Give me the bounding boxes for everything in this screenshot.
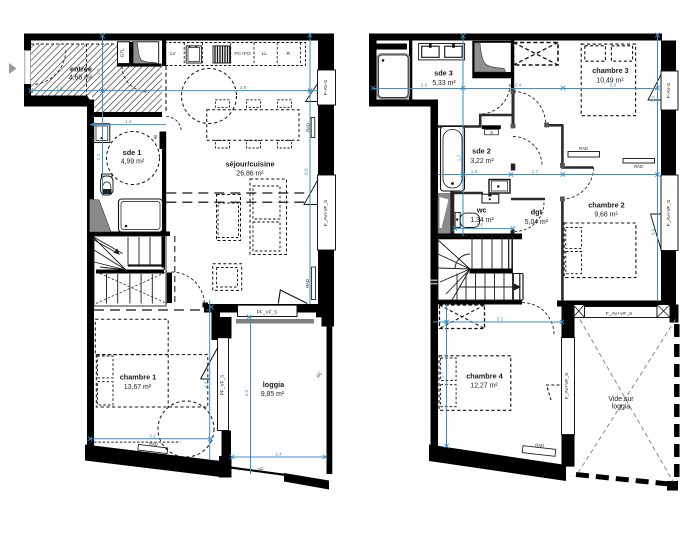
svg-text:RAD: RAD [535, 442, 544, 448]
svg-text:4.0: 4.0 [204, 381, 209, 388]
svg-text:3.0: 3.0 [651, 228, 656, 235]
svg-text:5,04 m²: 5,04 m² [525, 219, 549, 226]
svg-text:1.6: 1.6 [56, 85, 63, 90]
svg-text:1.5: 1.5 [477, 222, 484, 227]
svg-text:entrée: entrée [70, 64, 92, 73]
svg-text:1.7: 1.7 [440, 371, 445, 378]
svg-text:2.4: 2.4 [515, 82, 522, 87]
svg-text:1.9: 1.9 [125, 119, 132, 124]
svg-text:13,67 m²: 13,67 m² [124, 384, 152, 391]
svg-text:5,33 m²: 5,33 m² [432, 80, 456, 87]
svg-text:RAD: RAD [305, 279, 310, 288]
svg-text:4.0: 4.0 [244, 389, 249, 396]
svg-text:sde 1: sde 1 [123, 148, 142, 157]
svg-text:3.0: 3.0 [651, 95, 656, 102]
svg-text:90: 90 [153, 134, 158, 139]
svg-text:F_AV+VF_S: F_AV+VF_S [564, 373, 570, 399]
svg-text:3.9: 3.9 [240, 85, 247, 90]
svg-text:3.2: 3.2 [497, 316, 504, 321]
svg-text:F-AV-S: F-AV-S [323, 80, 329, 95]
svg-text:9,68 m²: 9,68 m² [594, 212, 618, 219]
svg-text:4,99 m²: 4,99 m² [121, 159, 145, 166]
svg-text:F_AV+VF_S: F_AV+VF_S [666, 200, 672, 226]
svg-text:LV: LV [170, 51, 176, 57]
svg-text:PF_VF_S: PF_VF_S [257, 310, 278, 316]
svg-text:F-AV-S: F-AV-S [666, 83, 672, 98]
svg-text:F_AV+VF_S: F_AV+VF_S [323, 200, 329, 226]
svg-text:6.8: 6.8 [304, 168, 309, 175]
svg-text:3.2: 3.2 [149, 433, 156, 438]
svg-text:loggia: loggia [263, 380, 285, 389]
svg-text:1.7: 1.7 [456, 154, 461, 161]
svg-text:26,86 m²: 26,86 m² [236, 171, 264, 178]
svg-text:PF_VF_S: PF_VF_S [219, 375, 225, 396]
svg-text:Vide sur: Vide sur [608, 396, 634, 403]
svg-text:1.7: 1.7 [532, 169, 539, 174]
svg-text:séjour/cuisine: séjour/cuisine [225, 160, 274, 169]
svg-text:12,27 m²: 12,27 m² [470, 382, 498, 389]
svg-text:S: S [490, 130, 493, 135]
svg-text:4,68 m²: 4,68 m² [69, 75, 93, 82]
svg-text:1.7: 1.7 [96, 68, 101, 75]
svg-text:3,22 m²: 3,22 m² [470, 158, 494, 165]
svg-text:2.1: 2.1 [96, 153, 101, 160]
svg-text:sde 3: sde 3 [434, 69, 453, 78]
svg-text:RAD: RAD [149, 441, 158, 447]
svg-text:9,85 m²: 9,85 m² [261, 391, 285, 398]
svg-text:chambre 1: chambre 1 [120, 373, 157, 382]
svg-text:2.6: 2.6 [610, 82, 617, 87]
svg-text:RAD: RAD [634, 164, 643, 169]
svg-text:LL: LL [262, 51, 268, 57]
svg-text:2.4: 2.4 [275, 451, 282, 456]
svg-text:RAD: RAD [579, 146, 588, 151]
svg-text:2.5: 2.5 [421, 82, 428, 87]
svg-text:F_AV+VF_S: F_AV+VF_S [606, 311, 632, 317]
svg-text:sde 2: sde 2 [472, 147, 491, 156]
svg-text:loggia: loggia [612, 404, 631, 411]
svg-text:R: R [286, 51, 290, 57]
svg-text:PC+FO: PC+FO [234, 51, 250, 57]
svg-text:dgt: dgt [531, 208, 543, 217]
svg-text:chambre 2: chambre 2 [588, 201, 625, 210]
svg-text:chambre 3: chambre 3 [592, 66, 629, 75]
svg-text:wc: wc [476, 206, 487, 215]
svg-text:1.9: 1.9 [471, 169, 478, 174]
svg-text:chambre 4: chambre 4 [466, 371, 503, 380]
svg-text:GTL: GTL [120, 48, 126, 58]
